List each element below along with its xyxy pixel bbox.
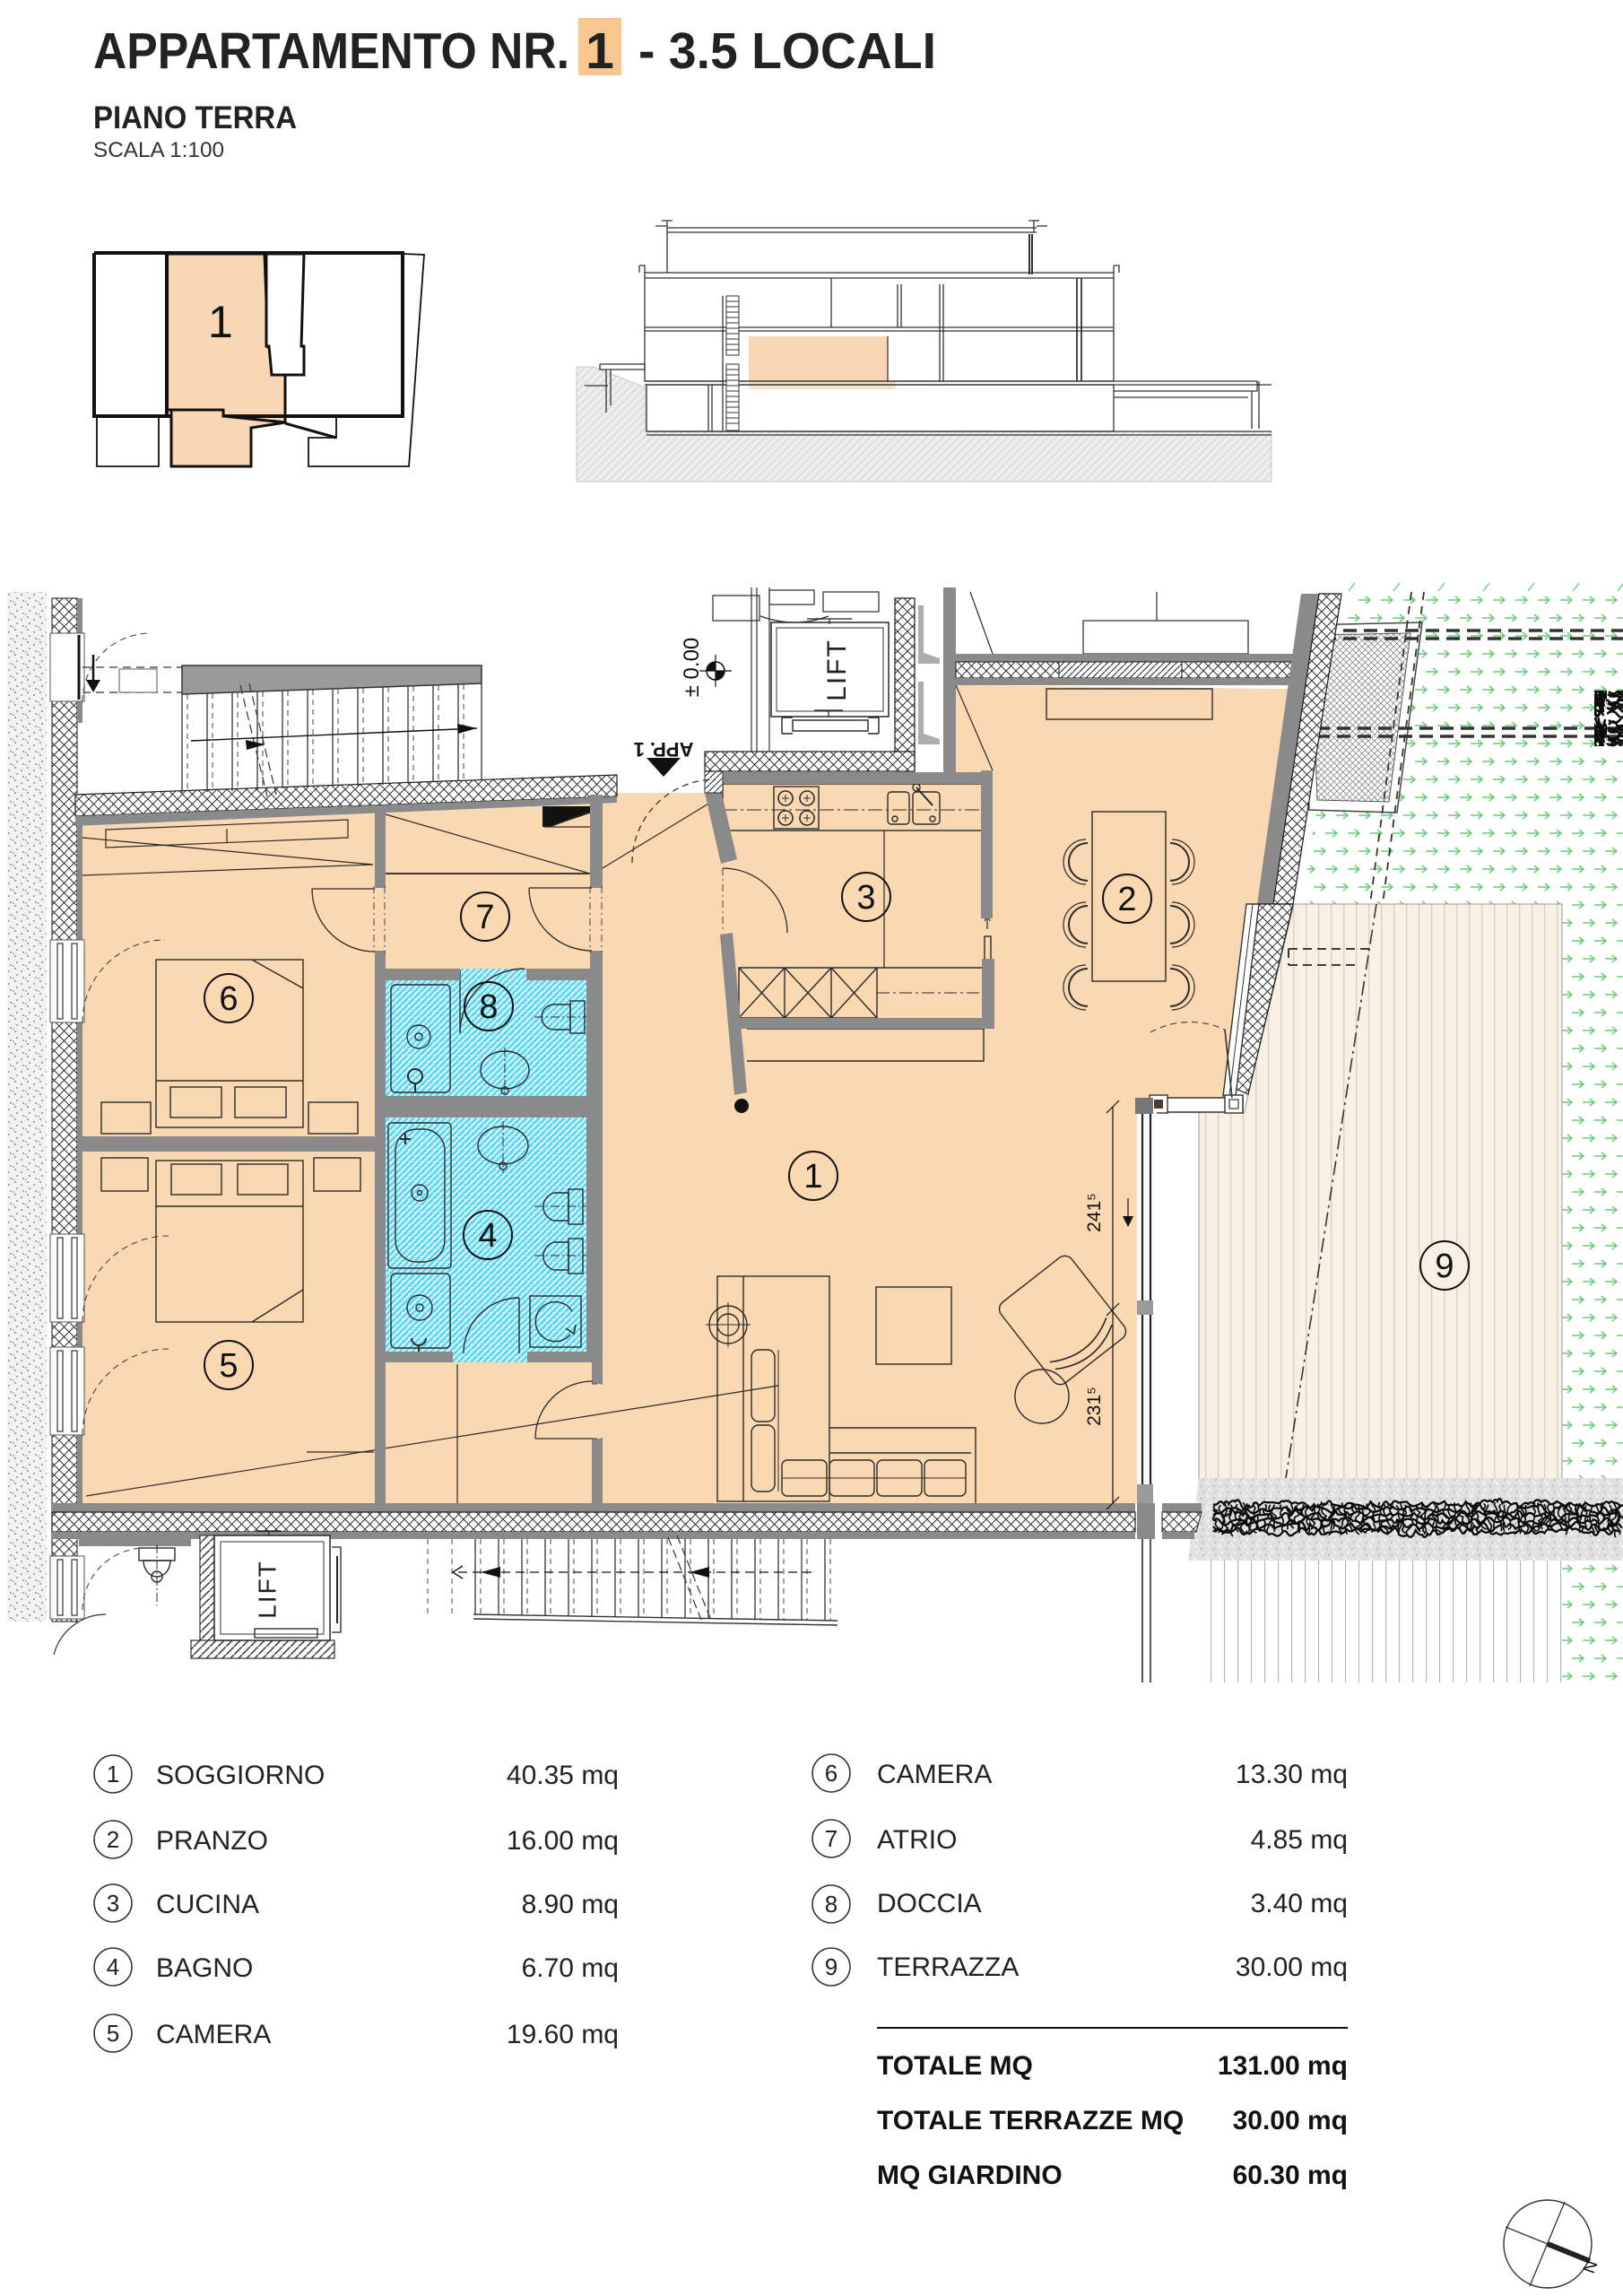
svg-text:LIFT: LIFT: [822, 639, 852, 701]
svg-text:± 0.00: ± 0.00: [680, 638, 704, 698]
svg-text:8: 8: [825, 1891, 838, 1918]
svg-text:3: 3: [107, 1890, 119, 1917]
svg-text:SCALA 1:100: SCALA 1:100: [93, 138, 224, 162]
svg-text:TOTALE TERRAZZE MQ: TOTALE TERRAZZE MQ: [877, 2106, 1184, 2135]
svg-text:40.35 mq: 40.35 mq: [507, 1761, 619, 1790]
svg-text:6: 6: [825, 1760, 838, 1787]
svg-text:8: 8: [479, 988, 498, 1026]
svg-text:4: 4: [107, 1953, 119, 1980]
svg-text:DOCCIA: DOCCIA: [877, 1889, 982, 1918]
svg-text:60.30 mq: 60.30 mq: [1233, 2161, 1348, 2190]
svg-text:CAMERA: CAMERA: [877, 1760, 992, 1789]
svg-text:19.60 mq: 19.60 mq: [507, 2020, 619, 2049]
svg-text:16.00 mq: 16.00 mq: [507, 1826, 619, 1856]
svg-text:LIFT: LIFT: [253, 1560, 281, 1619]
svg-text:131.00 mq: 131.00 mq: [1218, 2051, 1348, 2081]
svg-text:9: 9: [825, 1953, 838, 1980]
svg-text:7: 7: [475, 899, 494, 936]
svg-text:7: 7: [825, 1825, 838, 1852]
svg-text:TERRAZZA: TERRAZZA: [877, 1952, 1019, 1982]
svg-text:PRANZO: PRANZO: [156, 1826, 268, 1856]
svg-text:6.70 mq: 6.70 mq: [522, 1953, 619, 1983]
svg-text:13.30 mq: 13.30 mq: [1236, 1760, 1348, 1789]
svg-text:MQ GIARDINO: MQ GIARDINO: [877, 2161, 1063, 2190]
svg-text:PIANO TERRA: PIANO TERRA: [93, 100, 297, 135]
svg-text:2: 2: [107, 1826, 119, 1853]
svg-text:ATRIO: ATRIO: [877, 1825, 957, 1855]
svg-text:5: 5: [107, 2020, 119, 2047]
svg-text:6: 6: [219, 980, 238, 1018]
svg-text:1: 1: [803, 1158, 822, 1196]
svg-text:1: 1: [107, 1761, 119, 1787]
svg-text:231⁵: 231⁵: [1084, 1387, 1105, 1426]
svg-text:CUCINA: CUCINA: [156, 1890, 259, 1919]
svg-text:TOTALE MQ: TOTALE MQ: [877, 2051, 1033, 2081]
svg-text:5: 5: [219, 1347, 238, 1385]
svg-text:- 3.5 LOCALI: - 3.5 LOCALI: [638, 22, 936, 80]
svg-text:2: 2: [1117, 881, 1136, 918]
svg-text:1: 1: [208, 297, 233, 347]
svg-text:CAMERA: CAMERA: [156, 2020, 271, 2049]
svg-text:1: 1: [586, 22, 614, 80]
svg-text:3.40 mq: 3.40 mq: [1251, 1889, 1348, 1918]
svg-text:30.00 mq: 30.00 mq: [1233, 2106, 1348, 2135]
svg-text:30.00 mq: 30.00 mq: [1236, 1952, 1348, 1982]
svg-text:4.85 mq: 4.85 mq: [1251, 1825, 1348, 1855]
svg-text:3: 3: [856, 879, 875, 917]
svg-text:SOGGIORNO: SOGGIORNO: [156, 1761, 325, 1790]
svg-text:APP. 1: APP. 1: [634, 738, 694, 761]
svg-text:9: 9: [1435, 1248, 1454, 1285]
svg-text:8.90 mq: 8.90 mq: [522, 1890, 619, 1919]
svg-text:APPARTAMENTO NR.: APPARTAMENTO NR.: [93, 22, 569, 80]
svg-text:241⁵: 241⁵: [1084, 1193, 1105, 1232]
svg-text:BAGNO: BAGNO: [156, 1953, 253, 1983]
svg-text:4: 4: [478, 1217, 497, 1255]
